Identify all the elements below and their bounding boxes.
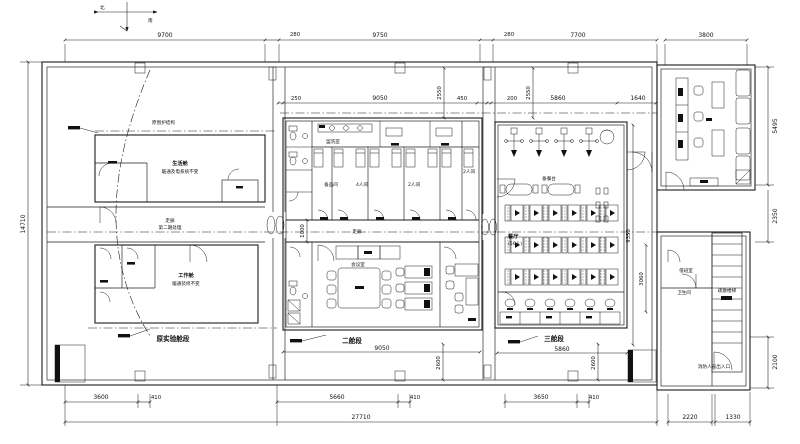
storage-label: 备品间 bbox=[324, 181, 338, 188]
dim-2550-a: 2550 bbox=[437, 86, 443, 100]
dim-2600-b: 2600 bbox=[591, 356, 597, 370]
axis-lines bbox=[47, 70, 657, 336]
dim-280-a: 280 bbox=[290, 32, 301, 38]
compass-north-label: 北 bbox=[100, 4, 105, 11]
section-left-label: 原实验舱段 bbox=[157, 334, 190, 343]
meeting-label: 会议室 bbox=[351, 261, 365, 268]
compass-icon: 北 南 bbox=[98, 2, 157, 31]
meeting-chairs bbox=[327, 271, 391, 308]
dim-9350: 9350 bbox=[626, 229, 632, 243]
right-office bbox=[444, 247, 478, 321]
middle-section: 盥洗室 备品间 4人间 2人间 2人间 走廊 bbox=[283, 118, 482, 345]
servery-label: 备餐台 bbox=[542, 175, 556, 182]
room-work-label: 工作舱 bbox=[178, 271, 194, 279]
dim-2350: 2350 bbox=[772, 208, 779, 223]
kitchen-equipment bbox=[505, 128, 615, 157]
corridor-left-label: 走廊 bbox=[165, 217, 175, 224]
dim-410-c: 410 bbox=[589, 395, 600, 401]
duty2-label: 卫生间 bbox=[677, 289, 691, 296]
corridor-left-note: 第二期处理 bbox=[159, 224, 182, 231]
dim-9700: 9700 bbox=[157, 32, 172, 39]
stair-exit-label: 消防人员出入口 bbox=[698, 363, 731, 370]
corridor-mid-label: 走廊 bbox=[352, 228, 362, 235]
dims-bottom-witness bbox=[65, 385, 750, 426]
dim-5860-top: 5860 bbox=[550, 95, 565, 102]
wall-columns bbox=[135, 63, 578, 381]
floor-plan-page: 原围护结构 生活舱 暖通及电系统不变 工作舱 暖通装修不变 走廊 第二期处理 原… bbox=[0, 0, 800, 444]
dim-3800: 3800 bbox=[698, 32, 713, 39]
dim-14710: 14710 bbox=[20, 214, 27, 233]
dims-top: 9700 280 9750 280 7700 3800 bbox=[65, 32, 747, 65]
dim-9050-top: 9050 bbox=[372, 95, 387, 102]
dim-1640: 1640 bbox=[630, 95, 645, 102]
dim-450: 450 bbox=[457, 96, 468, 102]
dims-interior: 250 9050 450 200 5860 1640 2550 2550 100… bbox=[278, 68, 656, 380]
dim-410-a: 410 bbox=[151, 395, 162, 401]
dim-9750: 9750 bbox=[372, 32, 387, 39]
room-work-note: 暖通装修不变 bbox=[172, 280, 200, 287]
dim-200: 200 bbox=[507, 96, 518, 102]
dim-3600: 3600 bbox=[93, 394, 108, 401]
stair-label: 疏散楼梯 bbox=[718, 287, 737, 294]
duty1-label: 值班室 bbox=[679, 267, 693, 274]
dim-2220: 2220 bbox=[682, 414, 697, 421]
divider-walls bbox=[267, 67, 497, 380]
dim-5495: 5495 bbox=[772, 118, 779, 133]
dim-5860-bottom: 5860 bbox=[554, 346, 569, 353]
dim-250: 250 bbox=[291, 96, 302, 102]
floor-plan-drawing: 原围护结构 生活舱 暖通及电系统不变 工作舱 暖通装修不变 走廊 第二期处理 原… bbox=[0, 0, 800, 444]
dim-2100: 2100 bbox=[772, 354, 779, 369]
section-right-label: 三舱段 bbox=[544, 334, 564, 343]
dim-280-b: 280 bbox=[504, 32, 515, 38]
dim-1330: 1330 bbox=[725, 414, 740, 421]
workstations bbox=[396, 266, 432, 310]
compass-south-label: 南 bbox=[148, 17, 153, 24]
dim-2550-b: 2550 bbox=[526, 86, 532, 100]
dim-1000: 1000 bbox=[300, 224, 306, 238]
canteen-label: 餐厅 bbox=[507, 232, 519, 240]
dim-3060: 3060 bbox=[639, 272, 645, 286]
room2a-label: 2人间 bbox=[408, 181, 421, 188]
dim-2600-a: 2600 bbox=[436, 356, 442, 370]
dim-27710: 27710 bbox=[351, 414, 370, 421]
canteen-capacity: (56人) bbox=[508, 241, 522, 247]
dim-7700: 7700 bbox=[570, 32, 585, 39]
dim-5660: 5660 bbox=[329, 394, 344, 401]
dim-9050-bottom: 9050 bbox=[374, 345, 389, 352]
note-left: 原围护结构 bbox=[152, 119, 175, 126]
dim-410-b: 410 bbox=[410, 395, 421, 401]
dims-left-right: 14710 5495 2350 2100 bbox=[20, 62, 779, 388]
room-life-label: 生活舱 bbox=[172, 159, 188, 167]
section-mid-label: 二舱段 bbox=[342, 336, 362, 345]
annex: 疏散楼梯 消防人员出入口 值班室 卫生间 bbox=[632, 70, 750, 386]
room2b-label: 2人间 bbox=[463, 168, 476, 175]
counter-chairs bbox=[505, 299, 615, 310]
left-section: 原围护结构 生活舱 暖通及电系统不变 工作舱 暖通装修不变 走廊 第二期处理 原… bbox=[47, 119, 265, 343]
canteen-section: 备餐台 bbox=[495, 122, 645, 343]
washroom-label: 盥洗室 bbox=[326, 138, 340, 145]
room4-label: 4人间 bbox=[356, 181, 369, 188]
dims-bottom: 3600 410 5660 410 3650 410 27710 2220 13… bbox=[65, 385, 750, 426]
room-life-note: 暖通及电系统不变 bbox=[162, 168, 199, 175]
outer-walls bbox=[42, 62, 755, 390]
dim-3650: 3650 bbox=[533, 394, 548, 401]
